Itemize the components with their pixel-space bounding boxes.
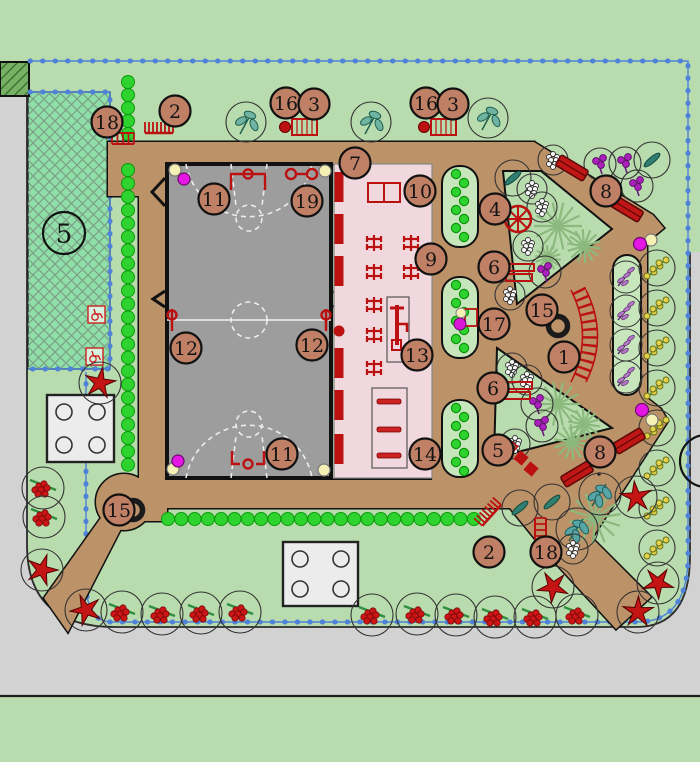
callout-number: 11 [270, 444, 294, 466]
callout-number: 2 [483, 542, 495, 564]
callout-number: 12 [174, 338, 198, 360]
yellow-berry-tree-icon [656, 380, 662, 386]
red-berry-tree-icon [45, 514, 51, 520]
hedge-shrub-icon [428, 513, 441, 526]
red-berry-tree-icon [163, 611, 169, 617]
callout-number: 16 [414, 93, 438, 115]
hedge-shrub-icon [122, 89, 135, 102]
red-berry-tree-icon [36, 520, 42, 526]
red-berry-tree-icon [193, 616, 199, 622]
hedge-shrub-icon [122, 244, 135, 257]
callout-number: 3 [308, 94, 320, 116]
hedge-shrub-icon [122, 324, 135, 337]
purple-flower-tree-icon [623, 161, 630, 168]
light-dot-icon [319, 165, 331, 177]
yellow-berry-tree-icon [663, 537, 669, 543]
zone-label-number: 5 [56, 219, 73, 249]
spiky-shrub-icon [571, 424, 572, 442]
hatched-square [0, 62, 29, 96]
callout-number: 15 [107, 500, 131, 522]
camera-dot-icon [178, 173, 190, 185]
red-berry-tree-icon [202, 610, 208, 616]
hedge-shrub-icon [122, 217, 135, 230]
red-berry-tree-icon [123, 609, 129, 615]
red-berry-tree-icon [200, 616, 206, 622]
callout-number: 18 [95, 112, 119, 134]
yellow-berry-tree-icon [644, 553, 650, 559]
callout-number: 9 [425, 249, 437, 271]
purple-flower-tree-icon [545, 263, 552, 270]
callout-number: 17 [482, 314, 506, 336]
callout-number: 19 [295, 191, 319, 213]
hedge-shrub-icon [122, 378, 135, 391]
red-berry-tree-icon [494, 620, 500, 626]
yellow-berry-tree-icon [644, 273, 650, 279]
hedge-shrub-icon [122, 311, 135, 324]
hedge-shrub-icon [295, 513, 308, 526]
callout-number: 3 [447, 94, 459, 116]
hedge-shrub-icon [334, 513, 347, 526]
purple-flower-tree-icon [542, 417, 549, 424]
yellow-berry-tree-icon [650, 266, 656, 272]
hedge-shrub-icon [122, 204, 135, 217]
hedge-shrub-icon [122, 338, 135, 351]
hedge-shrub-icon [122, 351, 135, 364]
callout-number: 2 [169, 101, 181, 123]
hedge-shrub-icon [241, 513, 254, 526]
yellow-berry-tree-icon [644, 353, 650, 359]
site-plan: 1821631637104111996815171212113614115815… [0, 0, 700, 762]
red-berry-tree-icon [154, 617, 160, 623]
callout-number: 10 [408, 181, 432, 203]
red-berry-tree-icon [161, 617, 167, 623]
hedge-shrub-icon [454, 513, 467, 526]
hedge-shrub-icon [122, 418, 135, 431]
site-plan-canvas: 1821631637104111996815171212113614115815… [0, 0, 700, 762]
callout-number: 6 [488, 257, 500, 279]
hedge-shrub-icon [201, 513, 214, 526]
pavilion [283, 542, 358, 606]
hedge-shrub-icon [308, 513, 321, 526]
hedge-shrub-icon [281, 513, 294, 526]
purple-flower-tree-icon [598, 162, 605, 169]
gray-berry-tree-icon [508, 300, 513, 305]
hedge-shrub-icon [162, 513, 175, 526]
yellow-berry-tree-icon [663, 497, 669, 503]
yellow-berry-tree-icon [650, 386, 656, 392]
hedge-shrub-icon [414, 513, 427, 526]
urn-icon [419, 122, 430, 133]
red-berry-tree-icon [536, 614, 542, 620]
callout-number: 13 [405, 345, 429, 367]
callout-number: 16 [274, 93, 298, 115]
light-dot-icon [169, 164, 181, 176]
hedge-shrub-icon [255, 513, 268, 526]
yellow-berry-tree-icon [656, 540, 662, 546]
spiky-shrub-icon [584, 246, 585, 263]
red-berry-tree-icon [239, 615, 245, 621]
yellow-berry-tree-icon [644, 313, 650, 319]
hedge-shrub-icon [122, 76, 135, 89]
hedge-shrub-icon [122, 177, 135, 190]
purple-flower-tree-icon [543, 270, 550, 277]
yellow-berry-tree-icon [663, 257, 669, 263]
red-berry-tree-icon [487, 620, 493, 626]
callout-number: 8 [600, 181, 612, 203]
hedge-shrub-icon [321, 513, 334, 526]
hedge-shrub-icon [122, 365, 135, 378]
yellow-berry-tree-icon [650, 546, 656, 552]
hedge-shrub-icon [122, 164, 135, 177]
hedge-shrub-icon [122, 391, 135, 404]
yellow-berry-tree-icon [650, 426, 656, 432]
yellow-berry-tree-icon [656, 260, 662, 266]
red-berry-tree-icon [578, 612, 584, 618]
purple-flower-tree-icon [600, 155, 607, 162]
yellow-berry-tree-icon [650, 306, 656, 312]
yellow-berry-tree-icon [663, 297, 669, 303]
red-berry-tree-icon [114, 615, 120, 621]
hedge-shrub-icon [122, 458, 135, 471]
callout-number: 7 [349, 153, 361, 175]
yellow-berry-tree-icon [650, 346, 656, 352]
red-berry-tree-icon [373, 612, 379, 618]
red-berry-tree-icon [121, 615, 127, 621]
red-berry-tree-icon [576, 618, 582, 624]
hedge-shrub-icon [122, 271, 135, 284]
camera-dot-icon [172, 455, 184, 467]
hedge-shrub-icon [215, 513, 228, 526]
purple-flower-tree-icon [637, 177, 644, 184]
hedge-shrub-icon [122, 257, 135, 270]
yellow-berry-tree-icon [656, 300, 662, 306]
callout-number: 14 [413, 444, 437, 466]
red-berry-tree-icon [364, 618, 370, 624]
red-berry-tree-icon [457, 612, 463, 618]
callout-number: 18 [534, 542, 558, 564]
yellow-berry-tree-icon [663, 337, 669, 343]
red-berry-tree-icon [534, 620, 540, 626]
hedge-shrub-icon [122, 445, 135, 458]
red-berry-tree-icon [43, 520, 49, 526]
gray-berry-tree-icon [551, 165, 556, 170]
callout-number: 5 [492, 440, 504, 462]
callout-number: 11 [202, 189, 226, 211]
purple-flower-tree-icon [537, 395, 544, 402]
yellow-berry-tree-icon [663, 417, 669, 423]
callout-number: 4 [489, 199, 501, 221]
hedge-shrub-icon [388, 513, 401, 526]
yellow-berry-tree-icon [663, 377, 669, 383]
callout-number: 15 [530, 300, 554, 322]
yellow-berry-tree-icon [656, 340, 662, 346]
red-berry-tree-icon [569, 618, 575, 624]
red-berry-tree-icon [44, 485, 50, 491]
red-berry-tree-icon [409, 617, 415, 623]
callout-number: 12 [300, 335, 324, 357]
hedge-shrub-icon [401, 513, 414, 526]
red-berry-tree-icon [232, 615, 238, 621]
hedge-shrub-icon [175, 513, 188, 526]
red-berry-tree-icon [527, 620, 533, 626]
hedge-shrub-icon [188, 513, 201, 526]
hedge-shrub-icon [122, 190, 135, 203]
camera-dot-icon [634, 238, 647, 251]
purple-flower-tree-icon [635, 184, 642, 191]
purple-flower-tree-icon [625, 154, 632, 161]
red-berry-tree-icon [496, 614, 502, 620]
hedge-shrub-icon [268, 513, 281, 526]
callout-number: 1 [558, 347, 570, 369]
yellow-berry-tree-icon [650, 466, 656, 472]
red-berry-tree-icon [241, 609, 247, 615]
hedge-shrub-icon [122, 231, 135, 244]
yellow-berry-tree-icon [644, 393, 650, 399]
red-berry-tree-icon [371, 618, 377, 624]
callout-number: 6 [487, 378, 499, 400]
hedge-shrub-icon [122, 405, 135, 418]
hedge-shrub-icon [361, 513, 374, 526]
light-dot-icon [318, 464, 330, 476]
hedge-shrub-icon [348, 513, 361, 526]
hedge-shrub-icon [228, 513, 241, 526]
red-berry-tree-icon [448, 618, 454, 624]
spiky-shrub-icon [583, 229, 584, 246]
yellow-berry-tree-icon [663, 457, 669, 463]
yellow-berry-tree-icon [656, 460, 662, 466]
red-berry-tree-icon [416, 617, 422, 623]
spiky-shrub-icon [572, 442, 573, 460]
hedge-shrub-icon [374, 513, 387, 526]
callout-number: 8 [594, 442, 606, 464]
red-berry-tree-icon [455, 618, 461, 624]
hedge-shrub-icon [441, 513, 454, 526]
urn-icon [280, 122, 291, 133]
purple-flower-tree-icon [535, 402, 542, 409]
hedge-shrub-icon [122, 298, 135, 311]
hedge-shrub-icon [122, 284, 135, 297]
purple-flower-tree-icon [540, 424, 547, 431]
light-dot-icon [646, 414, 658, 426]
camera-dot-icon [636, 404, 649, 417]
hedge-shrub-icon [122, 432, 135, 445]
gray-berry-tree-icon [571, 554, 576, 559]
pavilion [47, 395, 114, 462]
red-berry-tree-icon [418, 611, 424, 617]
gray-berry-tree-icon [526, 251, 531, 256]
hedge-shrub-icon [122, 102, 135, 115]
gray-berry-tree-icon [540, 212, 545, 217]
playground-zone [334, 164, 433, 478]
